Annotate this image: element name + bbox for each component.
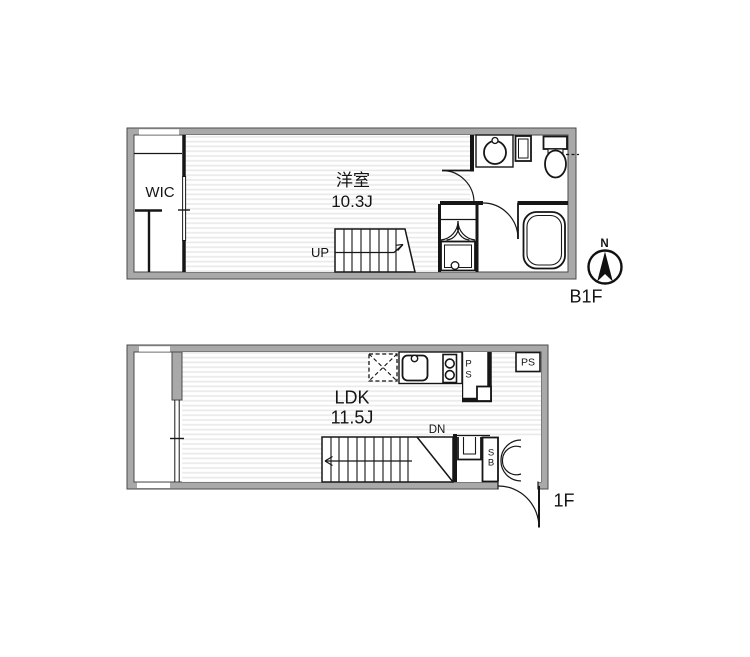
f1-left-wall — [172, 352, 182, 400]
b1f-room-size: 10.3J — [331, 193, 373, 211]
washroom-cabinet — [516, 136, 532, 161]
b1f-room-name: 洋室 — [336, 172, 370, 190]
kitchen — [369, 352, 462, 384]
washbasin — [476, 135, 513, 167]
b1f-floor-label: B1F — [569, 288, 602, 307]
faucet-icon — [411, 355, 417, 361]
floor-plan-page: WIC 洋室 10.3J UP B1F N LDK 11.5J DN PS PS… — [0, 0, 750, 657]
washer-drain — [451, 262, 459, 270]
b1f-top-window — [139, 129, 179, 134]
f1-room-size: 11.5J — [331, 409, 374, 428]
f1-top-window — [139, 346, 170, 351]
stairs-up — [335, 229, 415, 272]
kitchen-sink — [403, 355, 428, 380]
stove — [443, 355, 457, 383]
entrance-door — [498, 482, 539, 528]
f1-bottom-window — [137, 483, 170, 488]
pipe-shaft-vertical-label: PS — [465, 359, 470, 380]
refrigerator-space — [369, 354, 397, 381]
stairs-down-label: DN — [429, 423, 446, 435]
pipe-shaft-box — [477, 387, 491, 402]
compass-north-label: N — [600, 238, 608, 250]
stairs-up-label: UP — [311, 246, 329, 260]
f1-room-name: LDK — [334, 389, 369, 408]
faucet-icon — [492, 138, 498, 144]
ps-box-label: PS — [521, 357, 535, 368]
compass — [589, 251, 622, 284]
stairs-down — [322, 437, 453, 482]
wic-label: WIC — [145, 185, 174, 201]
bathtub — [524, 212, 566, 269]
floor-plan-drawing — [0, 0, 750, 657]
shoe-box-label: SB — [488, 448, 493, 469]
f1-plan — [127, 345, 548, 528]
f1-floor-label: 1F — [553, 492, 574, 511]
